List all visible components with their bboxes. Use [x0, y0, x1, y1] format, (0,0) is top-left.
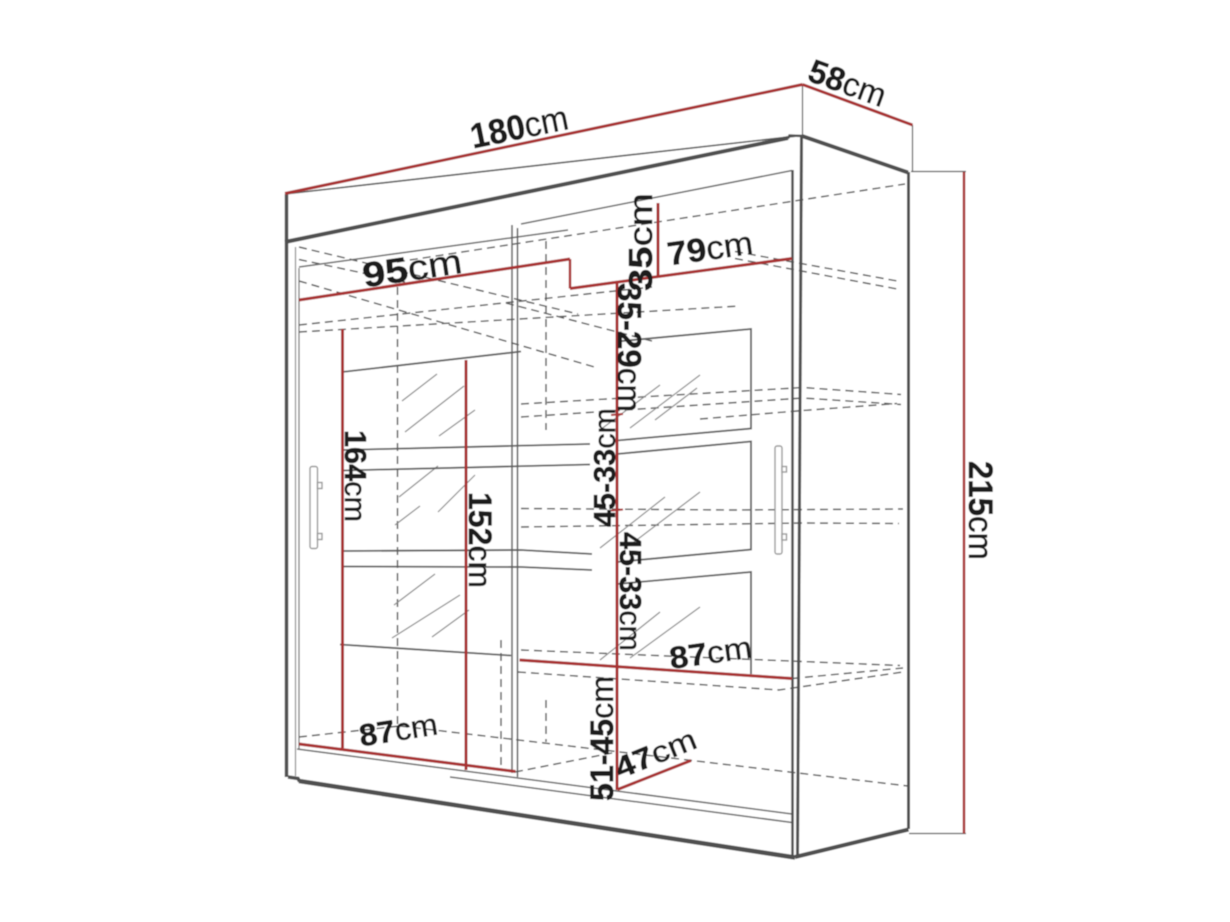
svg-text:45-33cm: 45-33cm: [587, 408, 622, 527]
svg-text:164cm: 164cm: [338, 430, 373, 522]
svg-text:35-29cm: 35-29cm: [611, 283, 648, 412]
svg-text:51-45cm: 51-45cm: [584, 676, 620, 801]
svg-text:152cm: 152cm: [462, 492, 498, 588]
svg-text:45-33cm: 45-33cm: [613, 532, 648, 651]
svg-text:35cm: 35cm: [622, 193, 659, 291]
svg-text:215cm: 215cm: [961, 461, 999, 560]
